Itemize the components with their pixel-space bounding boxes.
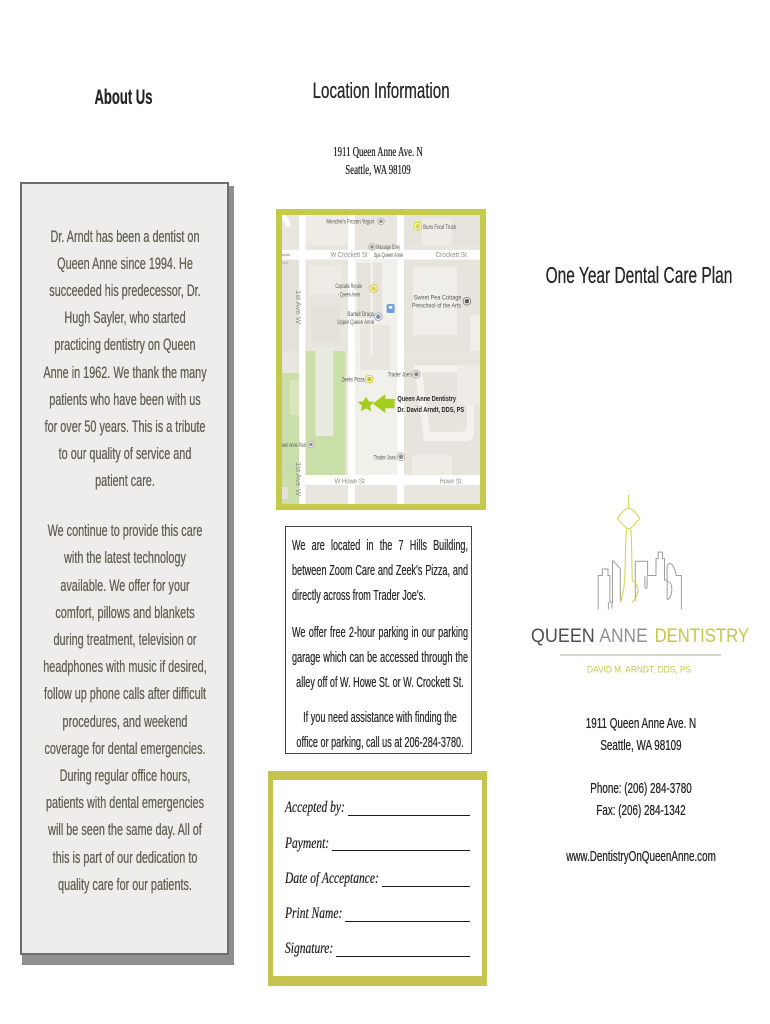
svg-text:QUEEN: QUEEN (531, 625, 595, 647)
svg-text:Bartell Drugs: Bartell Drugs (347, 311, 374, 318)
svg-text:Zeeks Pizza: Zeeks Pizza (342, 377, 365, 384)
svg-text:Cupcake Royale: Cupcake Royale (335, 283, 362, 290)
svg-text:Crockett St: Crockett St (436, 250, 468, 259)
svg-text:Buns Food Truck: Buns Food Truck (423, 224, 456, 231)
svg-text:DAVID M. ARNDT, DDS, PS: DAVID M. ARNDT, DDS, PS (587, 665, 691, 676)
svg-text:Massage Envy: Massage Envy (376, 244, 400, 251)
svg-text:Queen Anne Dentistry: Queen Anne Dentistry (397, 394, 456, 403)
svg-text:Howe St: Howe St (440, 477, 462, 486)
svg-text:Dr. David Arndt, DDS, PS: Dr. David Arndt, DDS, PS (397, 405, 464, 414)
svg-text:Upper Queen Anne: Upper Queen Anne (337, 319, 374, 326)
svg-text:Spa Queen Anne: Spa Queen Anne (374, 252, 404, 259)
svg-text:Sweet Pea Cottage: Sweet Pea Cottage (414, 295, 462, 302)
svg-text:Menchie's Frozen Yogurt: Menchie's Frozen Yogurt (326, 219, 374, 226)
svg-text:Preschool of the Arts: Preschool of the Arts (412, 303, 461, 310)
svg-text:W Crockett St: W Crockett St (331, 250, 369, 259)
svg-text:W Howe St: W Howe St (335, 477, 366, 486)
svg-text:een Anne Pool: een Anne Pool (282, 442, 306, 449)
svg-text:1st Ave W: 1st Ave W (294, 462, 303, 497)
svg-text:ANNE: ANNE (599, 625, 647, 647)
svg-text:Trader Joes: Trader Joes (374, 455, 396, 462)
svg-text:1st Ave W: 1st Ave W (294, 290, 303, 325)
svg-text:Trader Joe's: Trader Joe's (388, 372, 413, 379)
svg-text:- Queen Anne: - Queen Anne (338, 292, 361, 299)
svg-text:DENTISTRY: DENTISTRY (655, 625, 749, 647)
